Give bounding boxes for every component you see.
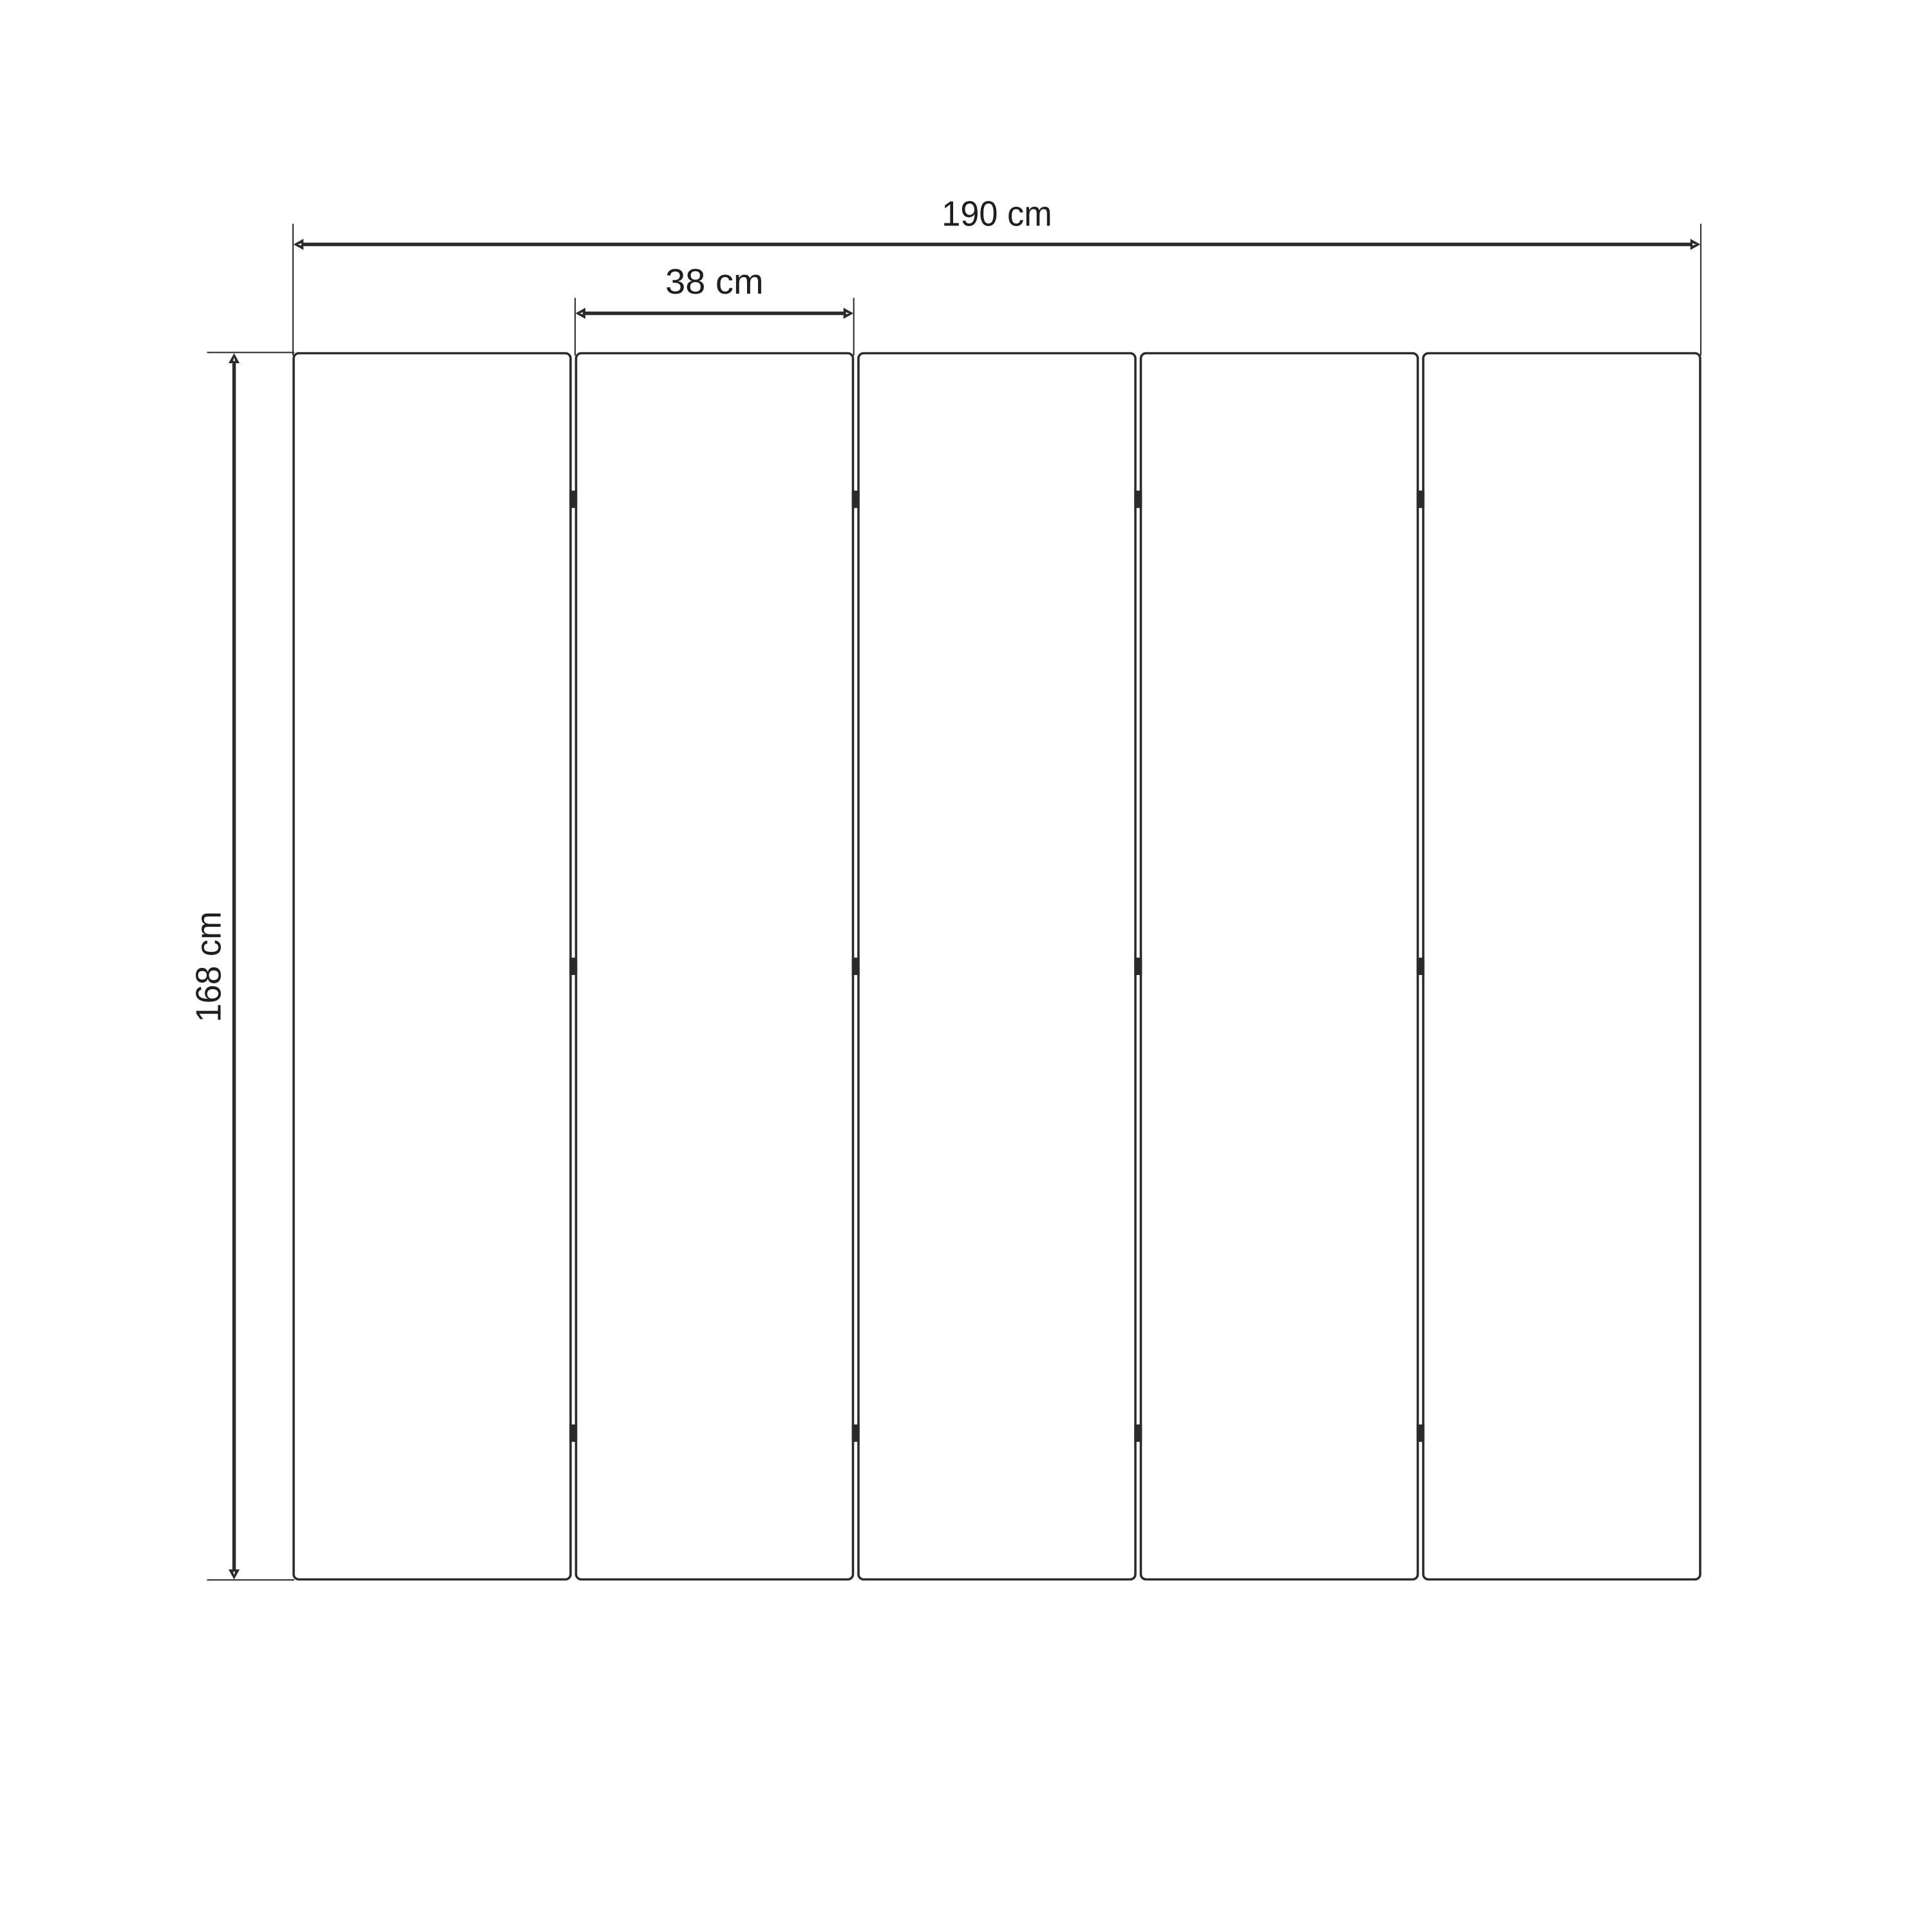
svg-text:168 cm: 168 cm xyxy=(189,911,229,1023)
svg-text:38 cm: 38 cm xyxy=(665,261,764,301)
svg-text:190 cm: 190 cm xyxy=(942,194,1052,234)
